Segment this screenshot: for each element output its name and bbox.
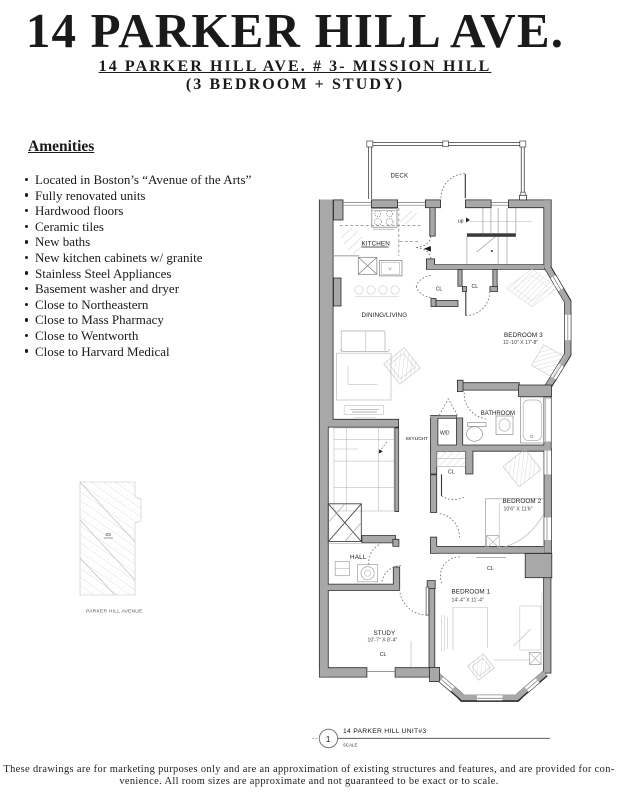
svg-text:KITCHEN: KITCHEN: [362, 241, 391, 248]
svg-text:14 PARKER HILL UNIT#3: 14 PARKER HILL UNIT#3: [343, 728, 426, 735]
svg-text:BATHROOM: BATHROOM: [481, 411, 515, 417]
svg-text:up: up: [458, 219, 464, 225]
svg-text:14'-4" X 11'-4": 14'-4" X 11'-4": [452, 598, 485, 604]
svg-text:STUDY: STUDY: [374, 630, 397, 637]
svg-text:SKYLIGHT: SKYLIGHT: [406, 436, 429, 441]
svg-text:CL: CL: [380, 652, 387, 658]
svg-text:CL: CL: [436, 287, 443, 293]
svg-text:BEDROOM 1: BEDROOM 1: [452, 589, 491, 596]
svg-text:BEDROOM 2: BEDROOM 2: [503, 498, 542, 505]
svg-text:10'6" X 11'6": 10'6" X 11'6": [504, 507, 533, 513]
svg-text:SCALE: SCALE: [343, 743, 357, 748]
svg-text:DINING/LIVING: DINING/LIVING: [362, 312, 408, 319]
svg-text:DECK: DECK: [391, 174, 409, 180]
svg-text:10'-7" X 8'-4": 10'-7" X 8'-4": [368, 637, 398, 643]
svg-text:1: 1: [326, 734, 331, 744]
svg-text:PARKER HILL AVENUE: PARKER HILL AVENUE: [86, 609, 143, 615]
svg-text:CL: CL: [448, 469, 455, 475]
svg-text:BEDROOM 3: BEDROOM 3: [504, 332, 543, 339]
svg-text:11'-10" X 17'-8": 11'-10" X 17'-8": [503, 340, 538, 346]
svg-text:W/D: W/D: [440, 431, 450, 437]
svg-text:CL: CL: [472, 284, 479, 290]
svg-text:CL: CL: [487, 566, 494, 572]
svg-text:HALL: HALL: [350, 554, 367, 561]
svg-text:03: 03: [106, 532, 112, 538]
